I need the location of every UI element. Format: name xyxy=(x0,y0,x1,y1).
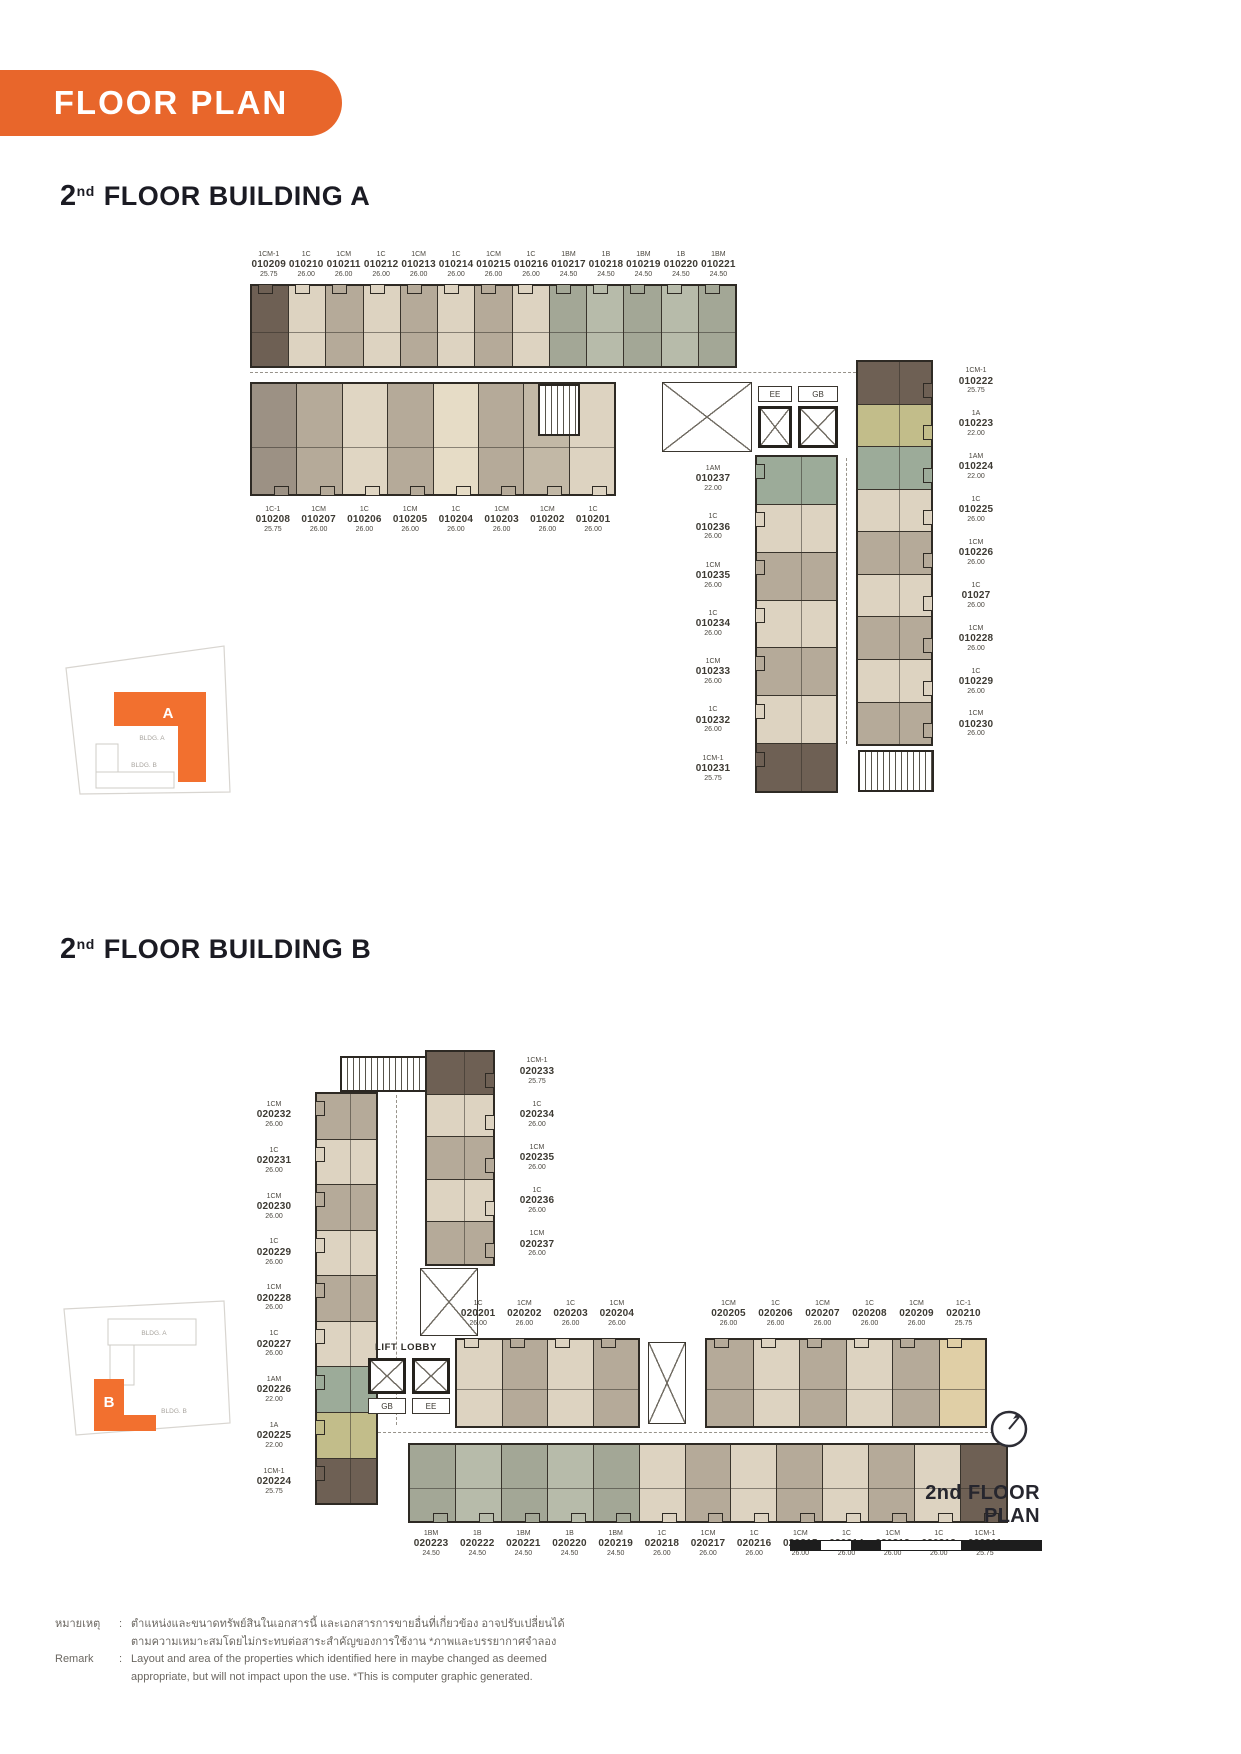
unit-cell xyxy=(757,600,836,648)
site-key-plan-b: BLDG. A B BLDG. B xyxy=(56,1295,234,1447)
unit-label: 1BM02022124.50 xyxy=(500,1526,546,1562)
unit-label: 1C02022726.00 xyxy=(238,1321,310,1367)
unit-cell xyxy=(317,1412,376,1458)
unit-cell xyxy=(501,1445,547,1521)
unit-label: 1A02022522.00 xyxy=(238,1413,310,1459)
bldg-a-label: BLDG. A xyxy=(141,1330,167,1337)
lift-shaft xyxy=(412,1358,450,1394)
unit-cell xyxy=(757,457,836,504)
bldg-b-label: BLDG. B xyxy=(131,762,157,769)
unit-cell xyxy=(502,1340,548,1426)
lift-lobby-label: LIFT LOBBY xyxy=(356,1342,456,1353)
electrical-room: EE xyxy=(412,1398,450,1414)
unit-label: 1C01022526.00 xyxy=(940,489,1012,532)
unit-label: 1AM01023722.00 xyxy=(676,455,750,503)
unit-label: 1CM01022626.00 xyxy=(940,532,1012,575)
building-b-top-unit-row-left xyxy=(455,1338,640,1428)
building-a-bottom-unit-labels: 1C-101020825.751CM01020726.001C01020626.… xyxy=(250,502,616,538)
unit-cell xyxy=(858,616,931,659)
unit-label: 1CM02023226.00 xyxy=(238,1092,310,1138)
plan-title: 2nd FLOOR PLAN xyxy=(865,1482,1040,1528)
building-b-top-unit-row-right xyxy=(705,1338,987,1428)
bldg-a-label: BLDG. A xyxy=(139,735,165,742)
unit-cell xyxy=(822,1445,868,1521)
building-a-highlight xyxy=(114,692,206,726)
building-b-left-unit-column xyxy=(315,1092,378,1505)
unit-label: 1C02023626.00 xyxy=(500,1180,574,1223)
unit-label: 1CM02020926.00 xyxy=(893,1296,940,1332)
unit-label: 1CM-101022225.75 xyxy=(940,360,1012,403)
building-a-top-unit-labels: 1CM-101020925.751C01021026.001CM01021126… xyxy=(250,248,737,282)
unit-cell xyxy=(317,1139,376,1185)
unit-cell xyxy=(547,1340,593,1426)
unit-label: 1CM01020726.00 xyxy=(296,502,342,538)
unit-label: 1BM02022324.50 xyxy=(408,1526,454,1562)
unit-label: 1CM01023026.00 xyxy=(940,703,1012,746)
unit-cell xyxy=(858,702,931,745)
unit-cell xyxy=(757,504,836,552)
unit-cell xyxy=(317,1184,376,1230)
unit-label: 1C01023426.00 xyxy=(676,600,750,648)
unit-cell xyxy=(427,1052,493,1094)
unit-label: 1CM01021326.00 xyxy=(400,248,437,282)
stair-void xyxy=(662,382,752,452)
unit-label: 1C-101020825.75 xyxy=(250,502,296,538)
unit-label: 1C01021026.00 xyxy=(287,248,324,282)
unit-label: 1C02023126.00 xyxy=(238,1138,310,1184)
unit-cell xyxy=(325,286,362,366)
floor-plan-page: FLOOR PLAN 2ndFLOOR BUILDING A 1CM-10102… xyxy=(0,0,1241,1754)
unit-cell xyxy=(858,659,931,702)
unit-label: 1C01022926.00 xyxy=(940,660,1012,703)
unit-cell xyxy=(858,574,931,617)
title-number: 2 xyxy=(60,180,77,212)
unit-cell xyxy=(757,552,836,600)
unit-cell xyxy=(252,286,288,366)
unit-cell xyxy=(858,531,931,574)
unit-cell xyxy=(858,404,931,447)
unit-cell xyxy=(757,743,836,791)
site-marker-b: B xyxy=(104,1394,115,1411)
unit-cell xyxy=(776,1445,822,1521)
stair-void xyxy=(648,1342,686,1424)
title-text: FLOOR BUILDING A xyxy=(104,181,370,211)
building-b-top-unit-labels-left: 1C02020126.001CM02020226.001C02020326.00… xyxy=(455,1296,640,1332)
unit-cell xyxy=(639,1445,685,1521)
unit-cell xyxy=(457,1340,502,1426)
remark-en-label: Remark xyxy=(55,1651,119,1669)
unit-label: 1AM02022622.00 xyxy=(238,1367,310,1413)
unit-cell xyxy=(427,1221,493,1264)
unit-label: 1A01022322.00 xyxy=(940,403,1012,446)
bldg-b-label: BLDG. B xyxy=(161,1408,187,1415)
unit-label: 1C01021426.00 xyxy=(437,248,474,282)
unit-label: 1CM02020726.00 xyxy=(799,1296,846,1332)
unit-label: 1CM01023526.00 xyxy=(676,552,750,600)
unit-label: 1BM01021924.50 xyxy=(625,248,662,282)
unit-label: 1C02023426.00 xyxy=(500,1093,574,1136)
lift-shaft xyxy=(798,406,838,448)
unit-cell xyxy=(387,384,432,494)
unit-cell xyxy=(410,1445,455,1521)
unit-cell xyxy=(342,384,387,494)
lift-shaft xyxy=(368,1358,406,1394)
lift-shaft xyxy=(758,406,792,448)
unit-label: 1CM02023026.00 xyxy=(238,1184,310,1230)
unit-cell xyxy=(296,384,341,494)
unit-cell xyxy=(846,1340,893,1426)
unit-label: 1C01023226.00 xyxy=(676,696,750,744)
unit-cell xyxy=(730,1445,776,1521)
unit-label: 1B01022024.50 xyxy=(662,248,699,282)
remark-en-line-1: Remark : Layout and area of the properti… xyxy=(55,1651,665,1669)
building-b-inner-unit-labels: 1CM-102023325.751C02023426.001CM02023526… xyxy=(500,1050,574,1266)
unit-label: 1C01020626.00 xyxy=(342,502,388,538)
unit-cell xyxy=(939,1340,986,1426)
unit-label: 1B01021824.50 xyxy=(587,248,624,282)
unit-label: 1CM-101023125.75 xyxy=(676,745,750,793)
unit-label: 1CM02020426.00 xyxy=(594,1296,640,1332)
unit-cell xyxy=(858,362,931,404)
unit-label: 1CM01020526.00 xyxy=(387,502,433,538)
remark-en-line-2: appropriate, but will not impact upon th… xyxy=(55,1669,665,1687)
unit-label: 1CM01021126.00 xyxy=(325,248,362,282)
unit-label: 1CM02022826.00 xyxy=(238,1276,310,1322)
unit-cell xyxy=(455,1445,501,1521)
unit-cell xyxy=(623,286,660,366)
unit-cell xyxy=(252,384,296,494)
floor-plan-badge: FLOOR PLAN xyxy=(0,70,342,136)
unit-label: 1CM-101020925.75 xyxy=(250,248,287,282)
unit-label: 1CM02020226.00 xyxy=(501,1296,547,1332)
unit-cell xyxy=(317,1458,376,1504)
building-a-right-unit-column xyxy=(856,360,933,746)
unit-label: 1C01020126.00 xyxy=(570,502,616,538)
building-a-right-unit-labels: 1CM-101022225.751A01022322.001AM01022422… xyxy=(940,360,1012,746)
unit-label: 1C02022926.00 xyxy=(238,1230,310,1276)
unit-cell xyxy=(707,1340,753,1426)
unit-cell xyxy=(288,286,325,366)
unit-label: 1C01023626.00 xyxy=(676,503,750,551)
unit-label: 1C01021226.00 xyxy=(362,248,399,282)
unit-cell xyxy=(685,1445,731,1521)
unit-label: 1C02020626.00 xyxy=(752,1296,799,1332)
unit-label: 1C02021626.00 xyxy=(731,1526,777,1562)
unit-label: 1C02020126.00 xyxy=(455,1296,501,1332)
unit-label: 1BM01021724.50 xyxy=(550,248,587,282)
unit-label: 1BM01022124.50 xyxy=(700,248,737,282)
garbage-room: GB xyxy=(798,386,838,402)
unit-cell xyxy=(437,286,474,366)
unit-label: 1C02020326.00 xyxy=(548,1296,594,1332)
unit-label: 1CM-102023325.75 xyxy=(500,1050,574,1093)
title-text: FLOOR BUILDING B xyxy=(104,934,371,964)
unit-label: 1CM01022826.00 xyxy=(940,617,1012,660)
unit-label: 1C0102726.00 xyxy=(940,574,1012,617)
stair-shaft xyxy=(538,384,580,436)
unit-label: 1CM02020526.00 xyxy=(705,1296,752,1332)
garbage-room: GB xyxy=(368,1398,406,1414)
north-compass-icon xyxy=(986,1406,1032,1452)
unit-label: 1CM01020226.00 xyxy=(525,502,571,538)
unit-label: 1CM02023526.00 xyxy=(500,1136,574,1179)
building-b-top-unit-labels-right: 1CM02020526.001C02020626.001CM02020726.0… xyxy=(705,1296,987,1332)
building-b-left-unit-labels: 1CM02023226.001C02023126.001CM02023026.0… xyxy=(238,1092,310,1505)
unit-label: 1CM02021726.00 xyxy=(685,1526,731,1562)
site-marker-a: A xyxy=(163,705,174,722)
unit-label: 1C01020426.00 xyxy=(433,502,479,538)
unit-label: 1B02022024.50 xyxy=(546,1526,592,1562)
unit-cell xyxy=(858,446,931,489)
unit-label: 1C01021626.00 xyxy=(512,248,549,282)
unit-cell xyxy=(474,286,511,366)
unit-cell xyxy=(586,286,623,366)
building-b-inner-unit-column xyxy=(425,1050,495,1266)
stair-shaft xyxy=(858,750,934,792)
title-ordinal: nd xyxy=(77,183,95,199)
building-a-title: 2ndFLOOR BUILDING A xyxy=(60,180,370,213)
remark-thai-line-2: ตามความเหมาะสมโดยไม่กระทบต่อสาระสำคัญของ… xyxy=(55,1634,665,1652)
unit-cell xyxy=(698,286,735,366)
unit-cell xyxy=(433,384,478,494)
remark-thai-line-1: หมายเหตุ : ตำแหน่งและขนาดทรัพย์สินในเอกส… xyxy=(55,1616,665,1634)
unit-label: 1CM01023326.00 xyxy=(676,648,750,696)
unit-cell xyxy=(400,286,437,366)
unit-label: 1C02020826.00 xyxy=(846,1296,893,1332)
unit-cell xyxy=(427,1094,493,1137)
building-b-title: 2ndFLOOR BUILDING B xyxy=(60,933,371,966)
site-key-plan-a: A BLDG. A BLDG. B xyxy=(56,606,234,798)
unit-cell xyxy=(478,384,523,494)
unit-cell xyxy=(892,1340,939,1426)
unit-label: 1BM02021924.50 xyxy=(593,1526,639,1562)
unit-cell xyxy=(757,647,836,695)
unit-label: 1CM01021526.00 xyxy=(475,248,512,282)
unit-label: 1C-102021025.75 xyxy=(940,1296,987,1332)
building-a-inner-unit-labels: 1AM01023722.001C01023626.001CM01023526.0… xyxy=(676,455,750,793)
building-a-corridor-line xyxy=(250,372,856,373)
unit-cell xyxy=(317,1094,376,1139)
unit-cell xyxy=(427,1136,493,1179)
unit-cell xyxy=(549,286,586,366)
floor-plan-badge-label: FLOOR PLAN xyxy=(54,84,288,122)
unit-cell xyxy=(757,695,836,743)
unit-cell xyxy=(593,1445,639,1521)
unit-cell xyxy=(363,286,400,366)
unit-label: 1B02022224.50 xyxy=(454,1526,500,1562)
unit-cell xyxy=(317,1275,376,1321)
building-b-corridor-line xyxy=(378,1432,1008,1433)
title-ordinal: nd xyxy=(77,936,95,952)
electrical-room: EE xyxy=(758,386,792,402)
unit-cell xyxy=(858,489,931,532)
unit-cell xyxy=(753,1340,800,1426)
title-number: 2 xyxy=(60,933,77,965)
unit-cell xyxy=(512,286,549,366)
unit-cell xyxy=(317,1230,376,1276)
unit-label: 1AM01022422.00 xyxy=(940,446,1012,489)
remark-block: หมายเหตุ : ตำแหน่งและขนาดทรัพย์สินในเอกส… xyxy=(55,1616,665,1686)
unit-label: 1CM-102022425.75 xyxy=(238,1459,310,1505)
building-a-corridor-line-vertical xyxy=(846,458,847,744)
unit-cell xyxy=(593,1340,639,1426)
unit-label: 1CM01020326.00 xyxy=(479,502,525,538)
building-a-top-unit-row xyxy=(250,284,737,368)
unit-label: 1C02021826.00 xyxy=(639,1526,685,1562)
unit-cell xyxy=(547,1445,593,1521)
unit-cell xyxy=(661,286,698,366)
unit-label: 1CM02023726.00 xyxy=(500,1223,574,1266)
building-a-inner-unit-column xyxy=(755,455,838,793)
scale-bar xyxy=(790,1540,1042,1551)
remark-thai-label: หมายเหตุ xyxy=(55,1616,119,1634)
unit-cell xyxy=(427,1179,493,1222)
unit-cell xyxy=(799,1340,846,1426)
